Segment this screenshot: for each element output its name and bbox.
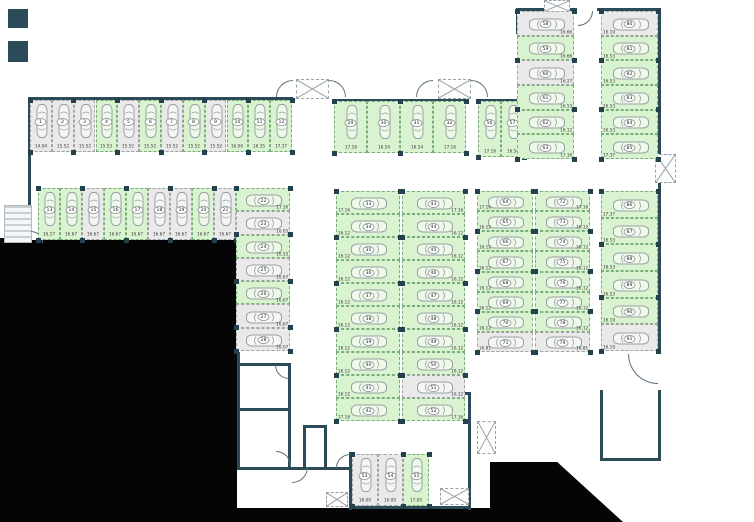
column-marker: [656, 9, 661, 14]
space-length-label: 17.16: [338, 208, 350, 213]
column-marker: [234, 232, 239, 237]
space-length-label: 16.27: [43, 232, 55, 237]
space-length-label: 15.53: [100, 144, 112, 149]
parking-space[interactable]: 3916.12: [336, 329, 400, 352]
parking-space[interactable]: 615.52: [139, 100, 161, 152]
parking-space[interactable]: 3317.16: [336, 191, 400, 214]
void-area-diagonal: [490, 462, 630, 522]
space-number-badge: 5: [122, 118, 134, 126]
space-number-badge: 56: [484, 119, 496, 127]
space-length-label: 16.00: [359, 498, 371, 503]
column-marker: [80, 238, 85, 243]
space-length-label: 17.16: [276, 205, 288, 210]
space-length-label: 14.04: [35, 144, 47, 149]
column-marker: [290, 150, 295, 155]
parking-space[interactable]: 6317.16: [517, 134, 574, 159]
space-number-badge: 38: [362, 315, 374, 323]
parking-space[interactable]: 4516.12: [402, 237, 465, 260]
space-number-badge: 76: [557, 279, 569, 287]
column-marker: [168, 186, 173, 191]
space-length-label: 16.67: [276, 299, 288, 304]
parking-space[interactable]: 7616.12: [535, 272, 590, 292]
column-marker: [599, 189, 604, 194]
space-number-badge: 22: [257, 197, 269, 205]
parking-space[interactable]: 8016.19: [601, 11, 658, 36]
door-arc-icon: [628, 354, 658, 384]
column-marker: [71, 98, 76, 103]
column-marker: [599, 107, 604, 112]
parking-space[interactable]: 8716.53: [601, 218, 658, 245]
parking-space[interactable]: 1716.67: [126, 188, 148, 240]
parking-space[interactable]: 315.52: [74, 100, 96, 152]
parking-space[interactable]: 2016.67: [192, 188, 214, 240]
space-number-badge: 59: [540, 45, 552, 53]
space-length-label: 16.53: [603, 104, 615, 109]
parking-space[interactable]: 3416.12: [336, 214, 400, 237]
space-length-label: 17.16: [344, 145, 356, 150]
parking-space[interactable]: 5617.16: [478, 101, 501, 157]
parking-space[interactable]: 6816.12: [477, 272, 533, 292]
column-marker: [159, 150, 164, 155]
column-marker: [656, 242, 661, 247]
column-marker: [80, 186, 85, 191]
parking-space[interactable]: 5316.00: [352, 454, 378, 506]
space-length-label: 16.53: [276, 252, 288, 257]
space-number-badge: 81: [624, 45, 636, 53]
space-length-label: 16.12: [338, 369, 350, 374]
column-marker: [400, 373, 405, 378]
wall: [658, 390, 661, 460]
wall: [352, 506, 470, 509]
space-number-badge: 88: [624, 255, 636, 263]
parking-space[interactable]: 3016.54: [367, 101, 400, 153]
parking-space[interactable]: 4916.12: [402, 329, 465, 352]
parking-space[interactable]: 6116.53: [517, 85, 574, 110]
column-marker: [288, 279, 293, 284]
space-length-label: 16.67: [276, 322, 288, 327]
space-number-badge: 27: [257, 313, 269, 321]
parking-space[interactable]: 2816.07: [236, 328, 290, 351]
space-number-badge: 40: [362, 361, 374, 369]
column-marker: [533, 350, 538, 355]
column-marker: [599, 157, 604, 162]
space-number-badge: 6: [144, 118, 156, 126]
door-arc-icon: [336, 454, 350, 468]
column-marker: [124, 186, 129, 191]
parking-space[interactable]: 1217.37: [270, 100, 292, 152]
column-marker: [656, 295, 661, 300]
column-marker: [202, 98, 207, 103]
column-marker: [599, 349, 604, 354]
column-marker: [400, 189, 405, 194]
space-length-label: 16.12: [576, 286, 588, 291]
space-number-badge: 46: [428, 269, 440, 277]
column-marker: [398, 99, 403, 104]
column-marker: [288, 349, 293, 354]
parking-space[interactable]: 6016.27: [517, 60, 574, 85]
space-number-badge: 79: [557, 339, 569, 347]
column-marker: [427, 452, 432, 457]
space-length-label: 16.67: [65, 232, 77, 237]
space-length-label: 17.16: [451, 415, 463, 420]
column-marker: [515, 58, 520, 63]
parking-space[interactable]: 5116.12: [402, 375, 465, 398]
space-number-badge: 39: [362, 338, 374, 346]
column-marker: [533, 309, 538, 314]
space-number-badge: 10: [232, 118, 244, 126]
space-number-badge: 9: [210, 118, 222, 126]
space-length-label: 16.07: [276, 345, 288, 350]
parking-space[interactable]: 4616.12: [402, 260, 465, 283]
door-arc-icon: [471, 80, 488, 97]
parking-space[interactable]: 5916.66: [517, 36, 574, 61]
space-length-label: 16.19: [603, 318, 615, 323]
parking-space[interactable]: 3516.12: [336, 237, 400, 260]
parking-space[interactable]: 4116.12: [336, 375, 400, 398]
column-marker: [588, 189, 593, 194]
space-number-badge: 44: [428, 223, 440, 231]
column-marker: [515, 157, 520, 162]
column-marker: [588, 309, 593, 314]
parking-space[interactable]: 1516.67: [82, 188, 104, 240]
space-length-label: 16.12: [338, 277, 350, 282]
space-length-label: 15.52: [188, 144, 200, 149]
column-marker: [398, 151, 403, 156]
parking-space[interactable]: 7217.16: [535, 191, 590, 211]
wall: [303, 425, 306, 470]
parking-space[interactable]: 3816.12: [336, 306, 400, 329]
parking-space[interactable]: 515.52: [117, 100, 139, 152]
column-marker: [656, 189, 661, 194]
space-number-badge: 3: [79, 118, 91, 126]
column-marker: [463, 327, 468, 332]
column-marker: [334, 281, 339, 286]
space-number-badge: 85: [624, 144, 636, 152]
parking-space[interactable]: 3716.12: [336, 283, 400, 306]
column-marker: [400, 327, 405, 332]
parking-space[interactable]: 7416.12: [535, 231, 590, 251]
parking-space[interactable]: 1316.27: [38, 188, 60, 240]
wall: [237, 352, 240, 470]
space-number-badge: 71: [499, 339, 511, 347]
space-number-badge: 60: [540, 70, 552, 78]
column-marker: [533, 189, 538, 194]
parking-space[interactable]: 2716.67: [236, 304, 290, 327]
column-marker: [463, 373, 468, 378]
column-marker: [288, 325, 293, 330]
parking-space[interactable]: 7116.81: [477, 332, 533, 352]
column-marker: [588, 269, 593, 274]
column-marker: [159, 98, 164, 103]
column-marker: [533, 269, 538, 274]
space-number-badge: 91: [624, 335, 636, 343]
parking-space[interactable]: 1816.67: [148, 188, 170, 240]
column-marker: [656, 107, 661, 112]
door-arc-icon: [276, 80, 293, 97]
space-length-label: 16.12: [479, 266, 491, 271]
parking-space[interactable]: 4816.12: [402, 306, 465, 329]
parking-space[interactable]: 6417.16: [477, 191, 533, 211]
column-marker: [572, 157, 577, 162]
parking-space[interactable]: 8116.53: [601, 36, 658, 61]
parking-space[interactable]: 7516.12: [535, 251, 590, 271]
void-area: [237, 508, 490, 522]
column-marker: [290, 98, 295, 103]
column-marker: [246, 150, 251, 155]
space-length-label: 16.67: [87, 232, 99, 237]
column-marker: [350, 452, 355, 457]
void-area: [0, 238, 30, 522]
column-marker: [463, 419, 468, 424]
parking-space[interactable]: 7716.12: [535, 292, 590, 312]
column-marker: [401, 504, 406, 509]
parking-space[interactable]: 6916.12: [477, 292, 533, 312]
space-length-label: 16.12: [338, 392, 350, 397]
parking-space[interactable]: 6716.12: [477, 251, 533, 271]
space-length-label: 17.00: [410, 498, 422, 503]
column-marker: [36, 238, 41, 243]
parking-space[interactable]: 8416.53: [601, 110, 658, 135]
space-length-label: 15.52: [57, 144, 69, 149]
space-length-label: 16.53: [603, 54, 615, 59]
column-marker: [334, 373, 339, 378]
space-number-badge: 36: [362, 269, 374, 277]
wall: [8, 9, 28, 28]
parking-space[interactable]: 2516.67: [236, 258, 290, 281]
space-number-badge: 21: [219, 206, 231, 214]
space-length-label: 16.53: [603, 265, 615, 270]
space-number-badge: 82: [624, 70, 636, 78]
parking-space[interactable]: 6216.12: [517, 110, 574, 135]
wall: [237, 408, 290, 411]
space-number-badge: 66: [499, 238, 511, 246]
space-length-label: 17.16: [443, 145, 455, 150]
space-number-badge: 23: [257, 220, 269, 228]
column-marker: [588, 229, 593, 234]
space-length-label: 15.52: [79, 144, 91, 149]
parking-space[interactable]: 8816.53: [601, 244, 658, 271]
space-number-badge: 34: [362, 223, 374, 231]
column-marker: [115, 98, 120, 103]
space-length-label: 16.53: [603, 292, 615, 297]
wall: [658, 183, 661, 354]
column-marker: [332, 99, 337, 104]
column-marker: [334, 189, 339, 194]
space-number-badge: 33: [362, 200, 374, 208]
parking-space[interactable]: 915.52: [205, 100, 227, 152]
parking-space[interactable]: 3116.54: [400, 101, 433, 153]
space-length-label: 16.12: [479, 225, 491, 230]
wall: [8, 41, 28, 62]
door-arc-icon: [275, 365, 289, 379]
column-marker: [572, 58, 577, 63]
column-marker: [288, 232, 293, 237]
space-length-label: 16.66: [560, 30, 572, 35]
space-length-label: 16.12: [451, 277, 463, 282]
parking-space[interactable]: 3616.12: [336, 260, 400, 283]
parking-space[interactable]: 1016.06: [227, 100, 249, 152]
column-marker: [124, 238, 129, 243]
space-number-badge: 16: [109, 206, 121, 214]
space-length-label: 17.16: [338, 415, 350, 420]
wall: [288, 363, 291, 470]
space-number-badge: 87: [624, 228, 636, 236]
space-number-badge: 77: [557, 299, 569, 307]
column-marker: [427, 504, 432, 509]
parking-space[interactable]: 5217.16: [402, 398, 465, 421]
parking-space[interactable]: 4016.12: [336, 352, 400, 375]
column-marker: [202, 150, 207, 155]
column-marker: [28, 98, 33, 103]
parking-space[interactable]: 4317.16: [402, 191, 465, 214]
parking-space[interactable]: 4217.16: [336, 398, 400, 421]
parking-space[interactable]: 7916.81: [535, 332, 590, 352]
space-number-badge: 54: [385, 472, 397, 480]
space-number-badge: 84: [624, 119, 636, 127]
parking-space[interactable]: 2616.67: [236, 281, 290, 304]
space-length-label: 15.52: [144, 144, 156, 149]
column-marker: [334, 419, 339, 424]
space-number-badge: 48: [428, 315, 440, 323]
parking-space[interactable]: 4416.12: [402, 214, 465, 237]
column-marker: [572, 9, 577, 14]
space-number-badge: 64: [499, 198, 511, 206]
parking-space[interactable]: 7016.12: [477, 312, 533, 332]
space-length-label: 16.53: [603, 128, 615, 133]
column-marker: [246, 98, 251, 103]
space-length-label: 17.16: [483, 149, 495, 154]
parking-space[interactable]: 1916.67: [170, 188, 192, 240]
space-number-badge: 31: [411, 119, 423, 127]
space-length-label: 16.12: [338, 346, 350, 351]
column-marker: [400, 235, 405, 240]
parking-space[interactable]: 5416.00: [378, 454, 404, 506]
space-number-badge: 13: [43, 206, 55, 214]
space-length-label: 16.27: [560, 79, 572, 84]
space-length-label: 16.12: [451, 369, 463, 374]
parking-space[interactable]: 1116.35: [248, 100, 270, 152]
column-marker: [234, 279, 239, 284]
space-number-badge: 17: [131, 206, 143, 214]
parking-space[interactable]: 7316.12: [535, 211, 590, 231]
parking-space[interactable]: 6516.12: [477, 211, 533, 231]
space-number-badge: 29: [345, 119, 357, 127]
space-number-badge: 35: [362, 246, 374, 254]
parking-space[interactable]: 1616.67: [104, 188, 126, 240]
parking-space[interactable]: 2316.03: [236, 211, 290, 234]
space-number-badge: 24: [257, 243, 269, 251]
column-marker: [656, 349, 661, 354]
parking-space[interactable]: 7816.12: [535, 312, 590, 332]
parking-space[interactable]: 114.04: [30, 100, 52, 152]
column-marker: [168, 238, 173, 243]
parking-space[interactable]: 8216.53: [601, 60, 658, 85]
column-marker: [599, 295, 604, 300]
vent-shaft-icon: [440, 488, 469, 505]
column-marker: [212, 238, 217, 243]
door-arc-icon: [416, 80, 433, 97]
space-length-label: 16.53: [603, 238, 615, 243]
column-marker: [475, 350, 480, 355]
vent-shaft-icon: [296, 79, 329, 99]
column-marker: [515, 107, 520, 112]
parking-space[interactable]: 9116.19: [601, 324, 658, 351]
column-marker: [401, 452, 406, 457]
parking-space[interactable]: 5816.66: [517, 11, 574, 36]
space-length-label: 16.54: [377, 145, 389, 150]
parking-space[interactable]: 3217.16: [433, 101, 466, 153]
space-number-badge: 26: [257, 290, 269, 298]
space-length-label: 16.67: [197, 232, 209, 237]
parking-space[interactable]: 8916.53: [601, 271, 658, 298]
space-number-badge: 32: [444, 119, 456, 127]
parking-space[interactable]: 715.52: [161, 100, 183, 152]
space-length-label: 16.12: [451, 300, 463, 305]
space-number-badge: 37: [362, 292, 374, 300]
space-number-badge: 19: [175, 206, 187, 214]
parking-space[interactable]: 8517.37: [601, 134, 658, 159]
column-marker: [572, 107, 577, 112]
space-number-badge: 50: [428, 361, 440, 369]
parking-space[interactable]: 4716.12: [402, 283, 465, 306]
parking-space[interactable]: 8316.53: [601, 85, 658, 110]
column-marker: [334, 235, 339, 240]
void-area: [28, 240, 237, 522]
parking-space[interactable]: 1416.67: [60, 188, 82, 240]
column-marker: [599, 9, 604, 14]
column-marker: [475, 229, 480, 234]
space-length-label: 16.67: [175, 232, 187, 237]
space-length-label: 17.37: [603, 212, 615, 217]
space-length-label: 16.12: [451, 323, 463, 328]
parking-space[interactable]: 6616.12: [477, 231, 533, 251]
parking-space[interactable]: 2416.53: [236, 235, 290, 258]
column-marker: [656, 58, 661, 63]
space-length-label: 16.81: [479, 346, 491, 351]
parking-space[interactable]: 415.53: [96, 100, 118, 152]
parking-space[interactable]: 815.52: [183, 100, 205, 152]
parking-space[interactable]: 5016.12: [402, 352, 465, 375]
space-length-label: 16.67: [153, 232, 165, 237]
space-length-label: 16.12: [479, 326, 491, 331]
space-number-badge: 47: [428, 292, 440, 300]
space-length-label: 16.67: [219, 232, 231, 237]
parking-space[interactable]: 2217.16: [236, 188, 290, 211]
space-length-label: 16.12: [451, 346, 463, 351]
parking-space[interactable]: 9016.19: [601, 298, 658, 325]
space-number-badge: 28: [257, 336, 269, 344]
column-marker: [656, 157, 661, 162]
parking-space[interactable]: 215.52: [52, 100, 74, 152]
column-marker: [234, 325, 239, 330]
space-length-label: 16.12: [338, 323, 350, 328]
space-number-badge: 4: [101, 118, 113, 126]
space-length-label: 16.03: [276, 229, 288, 234]
space-number-badge: 11: [253, 118, 265, 126]
space-number-badge: 72: [557, 198, 569, 206]
column-marker: [515, 9, 520, 14]
space-number-badge: 15: [87, 206, 99, 214]
parking-space[interactable]: 5517.00: [403, 454, 429, 506]
parking-space[interactable]: 2917.16: [334, 101, 367, 153]
parking-space[interactable]: 8617.37: [601, 191, 658, 218]
space-length-label: 15.52: [210, 144, 222, 149]
column-marker: [475, 309, 480, 314]
space-length-label: 15.52: [166, 144, 178, 149]
space-length-label: 16.12: [576, 266, 588, 271]
column-marker: [533, 229, 538, 234]
space-number-badge: 68: [499, 279, 511, 287]
